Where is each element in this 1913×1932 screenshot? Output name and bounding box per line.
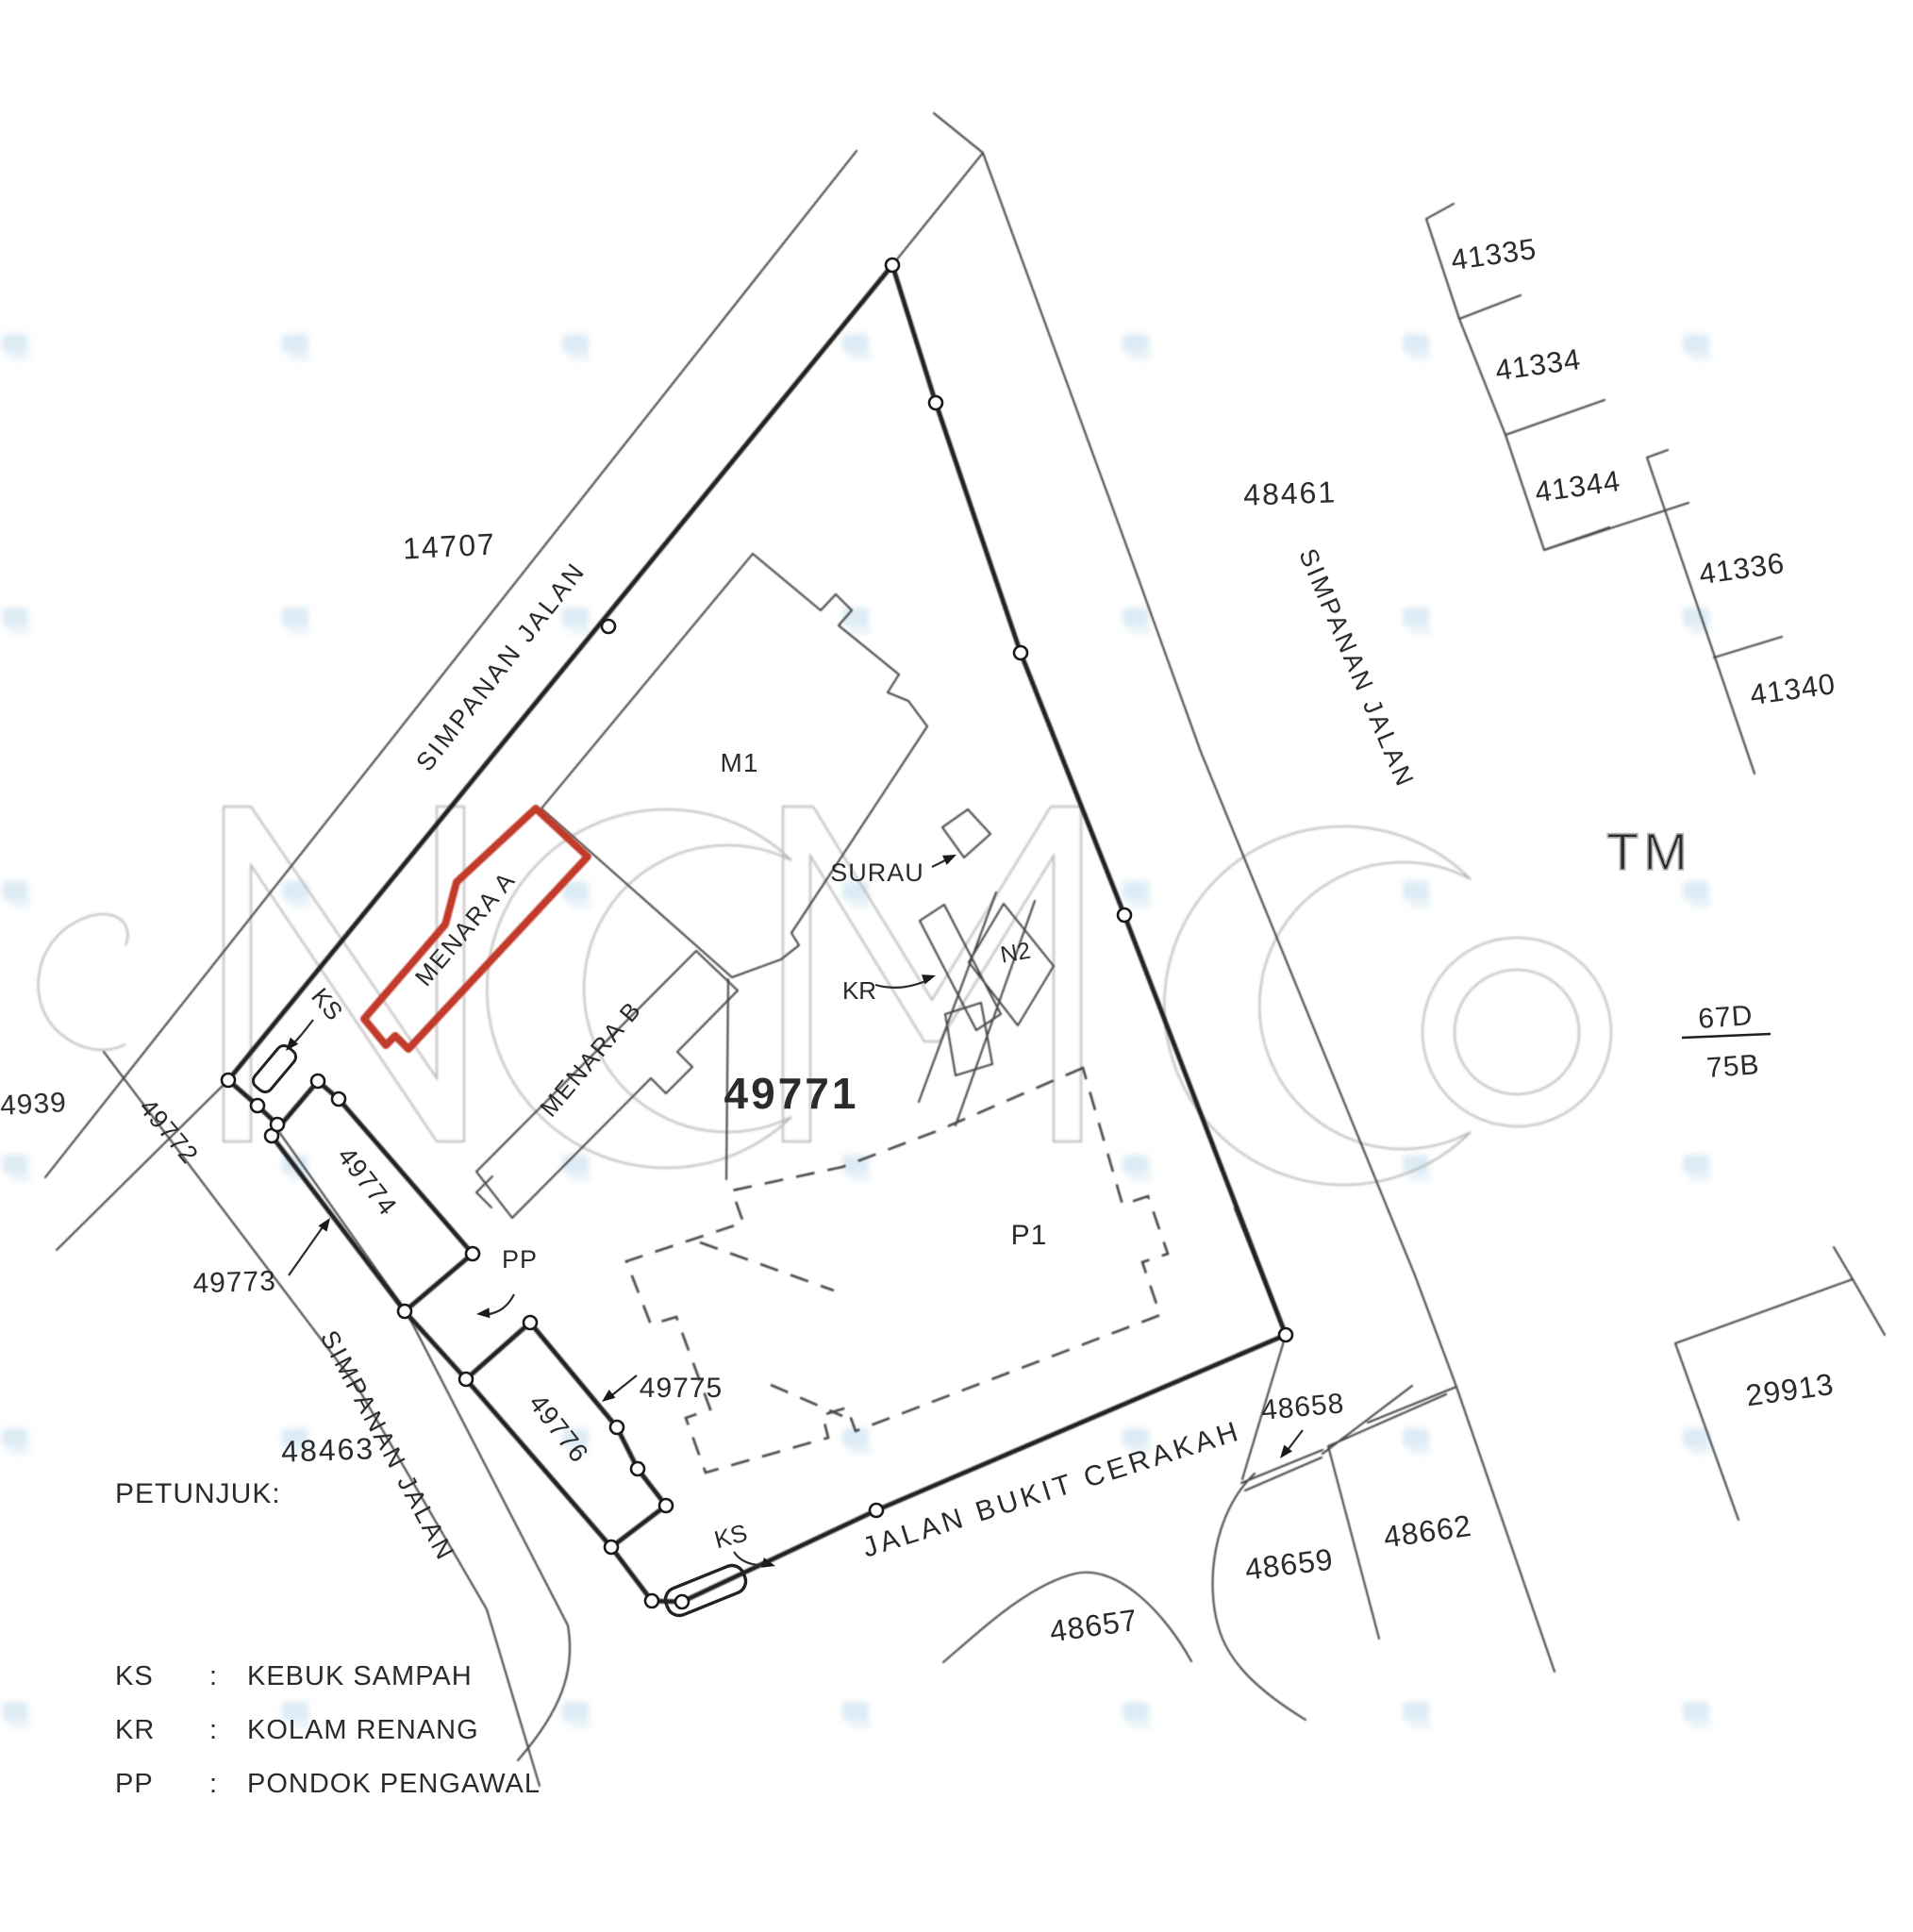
svg-text:48461: 48461 (1243, 475, 1338, 511)
svg-text:14707: 14707 (402, 526, 497, 565)
svg-text:48463: 48463 (281, 1431, 375, 1468)
svg-text:4939: 4939 (0, 1087, 68, 1122)
svg-text::: : (209, 1769, 218, 1799)
svg-text:67D: 67D (1697, 1000, 1754, 1035)
svg-text:PONDOK PENGAWAL: PONDOK PENGAWAL (247, 1769, 541, 1799)
svg-text:49775: 49775 (640, 1373, 723, 1404)
svg-text:P1: P1 (1011, 1220, 1048, 1251)
svg-text:M1: M1 (721, 748, 759, 777)
svg-text:49771: 49771 (724, 1069, 859, 1118)
svg-text::: : (209, 1661, 218, 1691)
svg-text:KR: KR (115, 1715, 155, 1745)
svg-text:SURAU: SURAU (830, 858, 924, 887)
svg-text::: : (209, 1715, 218, 1745)
svg-text:PP: PP (502, 1245, 538, 1274)
svg-text:KR: KR (842, 976, 876, 1005)
svg-text:PETUNJUK:: PETUNJUK: (115, 1478, 281, 1509)
svg-text:KOLAM RENANG: KOLAM RENANG (247, 1715, 479, 1745)
svg-text:PP: PP (115, 1769, 154, 1799)
svg-text:75B: 75B (1705, 1049, 1761, 1084)
svg-text:KEBUK SAMPAH: KEBUK SAMPAH (247, 1661, 473, 1691)
svg-text:TM: TM (1606, 822, 1692, 881)
svg-text:49773: 49773 (192, 1265, 277, 1299)
svg-text:N2: N2 (998, 938, 1032, 969)
svg-text:KS: KS (115, 1661, 154, 1691)
